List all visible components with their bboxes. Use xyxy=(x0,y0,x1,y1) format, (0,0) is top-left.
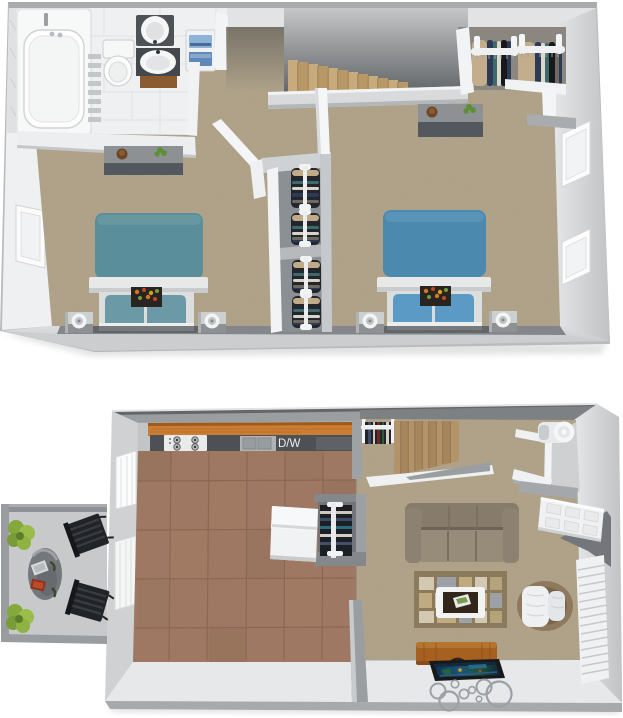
svg-text:D/W: D/W xyxy=(278,438,301,450)
